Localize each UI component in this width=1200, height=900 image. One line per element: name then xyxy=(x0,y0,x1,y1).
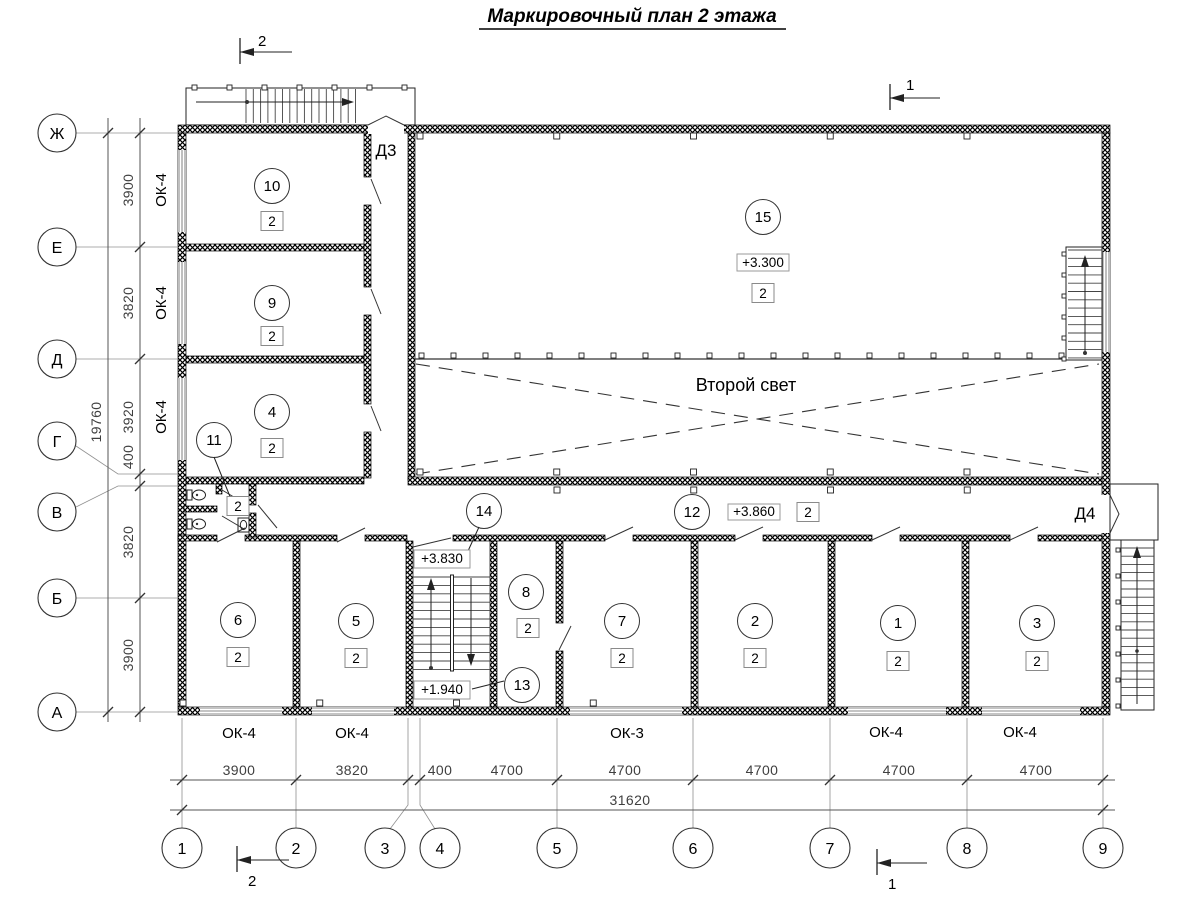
right-stair-rail-posts xyxy=(1116,548,1120,708)
room-type-badge: 2 xyxy=(352,651,360,666)
section-arrow-icon xyxy=(877,859,891,867)
wall-corr-south-5 xyxy=(633,535,735,541)
door-room4 xyxy=(371,406,381,431)
axis-bubble-2: 2 xyxy=(292,841,301,858)
room-type-badge: 2 xyxy=(234,650,242,665)
door-room1 xyxy=(872,527,900,540)
elevation-stair-upper: +3.830 xyxy=(421,551,463,566)
dim-left-3: 400 xyxy=(120,445,136,470)
door-labels: Д3 Д4 xyxy=(376,141,1096,523)
room-mark-12: 12 +3.860 2 xyxy=(675,495,820,530)
window-bottom-room6 xyxy=(200,707,282,715)
section-mark-2-top: 2 xyxy=(240,33,292,64)
columns-void-wall xyxy=(417,469,970,475)
wall-hall-left xyxy=(408,133,415,480)
door-room2 xyxy=(735,527,763,540)
wall-corridor-left-a xyxy=(364,133,371,177)
door-wc-lobby xyxy=(258,505,277,528)
section-arrow-icon xyxy=(890,94,904,102)
stair-center-rail xyxy=(451,575,454,671)
window-left-room4 xyxy=(178,378,186,460)
room-number: 5 xyxy=(352,613,360,630)
axis-bubble-zh: Ж xyxy=(50,126,65,143)
room-type-badge: 2 xyxy=(751,651,759,666)
door-d4-leaves xyxy=(1110,495,1119,533)
window-label-bottom-1: ОК-4 xyxy=(335,725,369,742)
window-bottom-room3 xyxy=(982,707,1080,715)
room-number: 4 xyxy=(268,404,276,421)
dim-bottom-5: 4700 xyxy=(746,762,779,778)
wall-stair-right xyxy=(490,541,497,707)
room-number: 13 xyxy=(514,677,531,694)
second-light-label: Второй свет xyxy=(696,375,797,395)
axis-bubble-6: 6 xyxy=(689,841,698,858)
exterior-doors xyxy=(368,116,1119,533)
room-mark-1: 1 2 xyxy=(881,606,916,671)
room-type-badge: 2 xyxy=(1033,654,1041,669)
room-number: 12 xyxy=(684,504,701,521)
window-label-left-2: ОК-4 xyxy=(153,400,170,434)
room-mark-5: 5 2 xyxy=(339,604,374,668)
columns-corridor xyxy=(554,487,970,493)
room-mark-15: 15 +3.300 2 xyxy=(737,200,789,303)
section-label-1: 1 xyxy=(906,77,914,94)
door-label-d3: Д3 xyxy=(376,141,397,160)
room-mark-7: 7 2 xyxy=(605,604,640,668)
door-room8 xyxy=(559,626,571,650)
section-label-2: 2 xyxy=(258,33,266,50)
room-number: 10 xyxy=(264,178,281,195)
wall-partition-8-7-a xyxy=(556,541,563,623)
window-label-bottom-3: ОК-4 xyxy=(869,724,903,741)
section-label-1: 1 xyxy=(888,876,896,893)
wall-wc-stub xyxy=(216,484,222,494)
wall-corr-south-2 xyxy=(245,535,337,541)
room-type-badge: 2 xyxy=(618,651,626,666)
room-number: 7 xyxy=(618,613,626,630)
dim-left-1: 3820 xyxy=(120,287,136,320)
axis-bubble-e: Е xyxy=(52,240,63,257)
room-type-badge: 2 xyxy=(268,214,276,229)
top-stair-treads xyxy=(246,89,356,123)
columns-bottom-wall xyxy=(180,700,596,706)
bottom-dimensions: 3900 3820 400 4700 4700 4700 4700 4700 3… xyxy=(162,718,1123,868)
room-type-badge: 2 xyxy=(804,505,812,520)
wall-room4-south xyxy=(186,477,364,484)
room-number: 14 xyxy=(476,503,493,520)
wall-top xyxy=(178,125,1110,133)
window-bottom-room5 xyxy=(312,707,394,715)
wall-partition-1-3 xyxy=(962,541,969,707)
room-type-badge: 2 xyxy=(268,329,276,344)
top-stair-start-dot xyxy=(245,100,249,104)
door-room6 xyxy=(217,528,245,542)
toilet-icon xyxy=(187,490,206,500)
walls xyxy=(178,125,1110,715)
floor-plan-sheet: Маркировочный план 2 этажа xyxy=(0,0,1200,900)
stair-down-arrow-icon xyxy=(467,654,475,666)
balcony-outline xyxy=(186,88,415,125)
axis-bubble-g: Г xyxy=(53,434,62,451)
left-axis-bubbles: Ж Е Д Г В Б А xyxy=(38,114,76,731)
wall-wc-east-a xyxy=(249,484,256,505)
section-mark-1-top: 1 xyxy=(890,77,940,110)
window-label-left-1: ОК-4 xyxy=(153,286,170,320)
wall-wc-mid xyxy=(184,506,217,512)
room-mark-2: 2 2 xyxy=(738,604,773,668)
axis-bubble-3: 3 xyxy=(381,841,390,858)
elevation-hall: +3.300 xyxy=(742,255,784,270)
window-left-room9 xyxy=(178,262,186,344)
elevation-stair-lower: +1.940 xyxy=(421,682,463,697)
room-number: 11 xyxy=(206,432,222,449)
door-label-d4: Д4 xyxy=(1075,504,1096,523)
dim-bottom-0: 3900 xyxy=(223,762,256,778)
wall-corr-south-6 xyxy=(763,535,872,541)
room-type-badge: 2 xyxy=(894,654,902,669)
section-label-2: 2 xyxy=(248,873,256,890)
door-stairwell xyxy=(413,538,451,547)
wall-void-south xyxy=(408,477,1102,485)
wall-corridor-left-c xyxy=(364,315,371,404)
stair-up-start-dot xyxy=(429,666,433,670)
page-title: Маркировочный план 2 этажа xyxy=(487,6,777,27)
hall-stair xyxy=(1062,247,1102,361)
axis-bubble-7: 7 xyxy=(826,841,835,858)
stair-elevations: +3.830 +1.940 xyxy=(414,550,470,699)
section-arrow-icon xyxy=(237,856,251,864)
axis-bubble-9: 9 xyxy=(1099,841,1108,858)
dim-bottom-1: 3820 xyxy=(336,762,369,778)
dim-bottom-6: 4700 xyxy=(883,762,916,778)
door-room3 xyxy=(1010,527,1038,540)
door-room10 xyxy=(371,179,381,204)
second-light-zone: Второй свет xyxy=(415,353,1099,474)
door-d3-opening xyxy=(368,124,404,134)
room-type-badge: 2 xyxy=(268,441,276,456)
wall-right xyxy=(1102,133,1110,707)
room-type-badge: 2 xyxy=(759,286,767,301)
room-type-badge: 2 xyxy=(524,621,532,636)
toilet-icon xyxy=(187,519,206,529)
window-left-room10 xyxy=(178,150,186,232)
axis-bubble-d: Д xyxy=(52,352,63,369)
dim-left-4: 3820 xyxy=(120,526,136,559)
axis-bubble-1: 1 xyxy=(178,841,187,858)
dim-bottom-total: 31620 xyxy=(610,792,651,808)
dim-left-5: 3900 xyxy=(120,639,136,672)
window-bottom-room7 xyxy=(570,707,682,715)
wall-corr-south-8 xyxy=(1038,535,1102,541)
room-number: 2 xyxy=(751,613,759,630)
window-right-hall xyxy=(1102,252,1110,352)
sink-icon xyxy=(238,518,249,532)
window-bottom-room1 xyxy=(848,707,946,715)
room-mark-11: 11 2 xyxy=(197,423,250,516)
window-openings xyxy=(178,150,1110,715)
window-label-bottom-2: ОК-3 xyxy=(610,725,644,742)
columns-top-wall xyxy=(417,133,970,139)
room-number: 1 xyxy=(894,615,902,632)
room-mark-13: 13 xyxy=(472,668,540,703)
dim-bottom-4: 4700 xyxy=(609,762,642,778)
room-number: 8 xyxy=(522,584,530,601)
room-mark-4: 4 2 xyxy=(255,395,290,458)
axis-bubble-5: 5 xyxy=(553,841,562,858)
door-room5 xyxy=(337,528,365,542)
dim-bottom-7: 4700 xyxy=(1020,762,1053,778)
axis-bubble-a: А xyxy=(52,705,63,722)
hall-stair-start-dot xyxy=(1083,351,1087,355)
room-mark-10: 10 2 xyxy=(255,169,290,231)
axis-bubble-8: 8 xyxy=(963,841,972,858)
wall-wc-east-b xyxy=(249,513,256,537)
axis-bubble-4: 4 xyxy=(436,841,445,858)
window-label-bottom-4: ОК-4 xyxy=(1003,724,1037,741)
dim-left-0: 3900 xyxy=(120,174,136,207)
main-stairwell xyxy=(413,575,490,671)
right-landing-outline xyxy=(1110,484,1158,540)
dim-left-total: 19760 xyxy=(88,402,104,443)
room-number: 6 xyxy=(234,612,242,629)
section-mark-1-bottom: 1 xyxy=(877,849,927,893)
window-label-bottom-0: ОК-4 xyxy=(222,725,256,742)
wall-partition-7-2 xyxy=(691,541,698,707)
wall-partition-9-4 xyxy=(186,356,364,363)
section-arrow-icon xyxy=(240,48,254,56)
wall-partition-10-9 xyxy=(186,244,364,251)
axis-bubble-b: Б xyxy=(52,591,63,608)
wall-corridor-left-b xyxy=(364,205,371,287)
void-railing-posts xyxy=(419,353,1064,358)
door-room7 xyxy=(605,527,633,540)
wall-corr-south-1 xyxy=(178,535,217,541)
elevation-corridor: +3.860 xyxy=(733,504,775,519)
door-d3-leaves xyxy=(368,116,404,125)
wall-corridor-left-d xyxy=(364,432,371,478)
door-room9 xyxy=(371,289,381,314)
wall-partition-6-5 xyxy=(293,541,300,707)
axis-bubble-v: В xyxy=(52,505,63,522)
room-number: 15 xyxy=(755,209,772,226)
left-dimensions: 3900 3820 3920 400 3820 3900 19760 ОК-4 … xyxy=(38,114,178,731)
sheet-title: Маркировочный план 2 этажа xyxy=(479,6,786,29)
room-mark-8: 8 2 xyxy=(509,575,544,638)
dim-left-2: 3920 xyxy=(120,401,136,434)
window-label-left-0: ОК-4 xyxy=(153,173,170,207)
wall-corr-south-4 xyxy=(453,535,605,541)
room-number: 3 xyxy=(1033,615,1041,632)
stair-up-arrow-icon xyxy=(427,578,435,590)
room-mark-9: 9 2 xyxy=(255,286,290,346)
dim-bottom-3: 4700 xyxy=(491,762,524,778)
floor-plan-canvas: Маркировочный план 2 этажа xyxy=(0,0,1200,900)
bottom-axis-bubbles: 1 2 3 4 5 6 7 8 9 xyxy=(162,828,1123,868)
right-stair-mid-dot xyxy=(1135,649,1139,653)
wall-corr-south-3 xyxy=(365,535,407,541)
dim-bottom-2: 400 xyxy=(428,762,453,778)
wall-partition-8-7-b xyxy=(556,651,563,707)
wall-stair-left xyxy=(406,541,413,707)
hall-stair-up-arrow-icon xyxy=(1081,255,1089,267)
wall-corr-south-7 xyxy=(900,535,1010,541)
room-type-badge: 2 xyxy=(234,499,242,514)
room-number: 9 xyxy=(268,295,276,312)
hall-stair-rail-posts xyxy=(1062,252,1066,361)
room-mark-6: 6 2 xyxy=(221,603,256,667)
wall-partition-2-1 xyxy=(828,541,835,707)
room-mark-3: 3 2 xyxy=(1020,606,1055,671)
